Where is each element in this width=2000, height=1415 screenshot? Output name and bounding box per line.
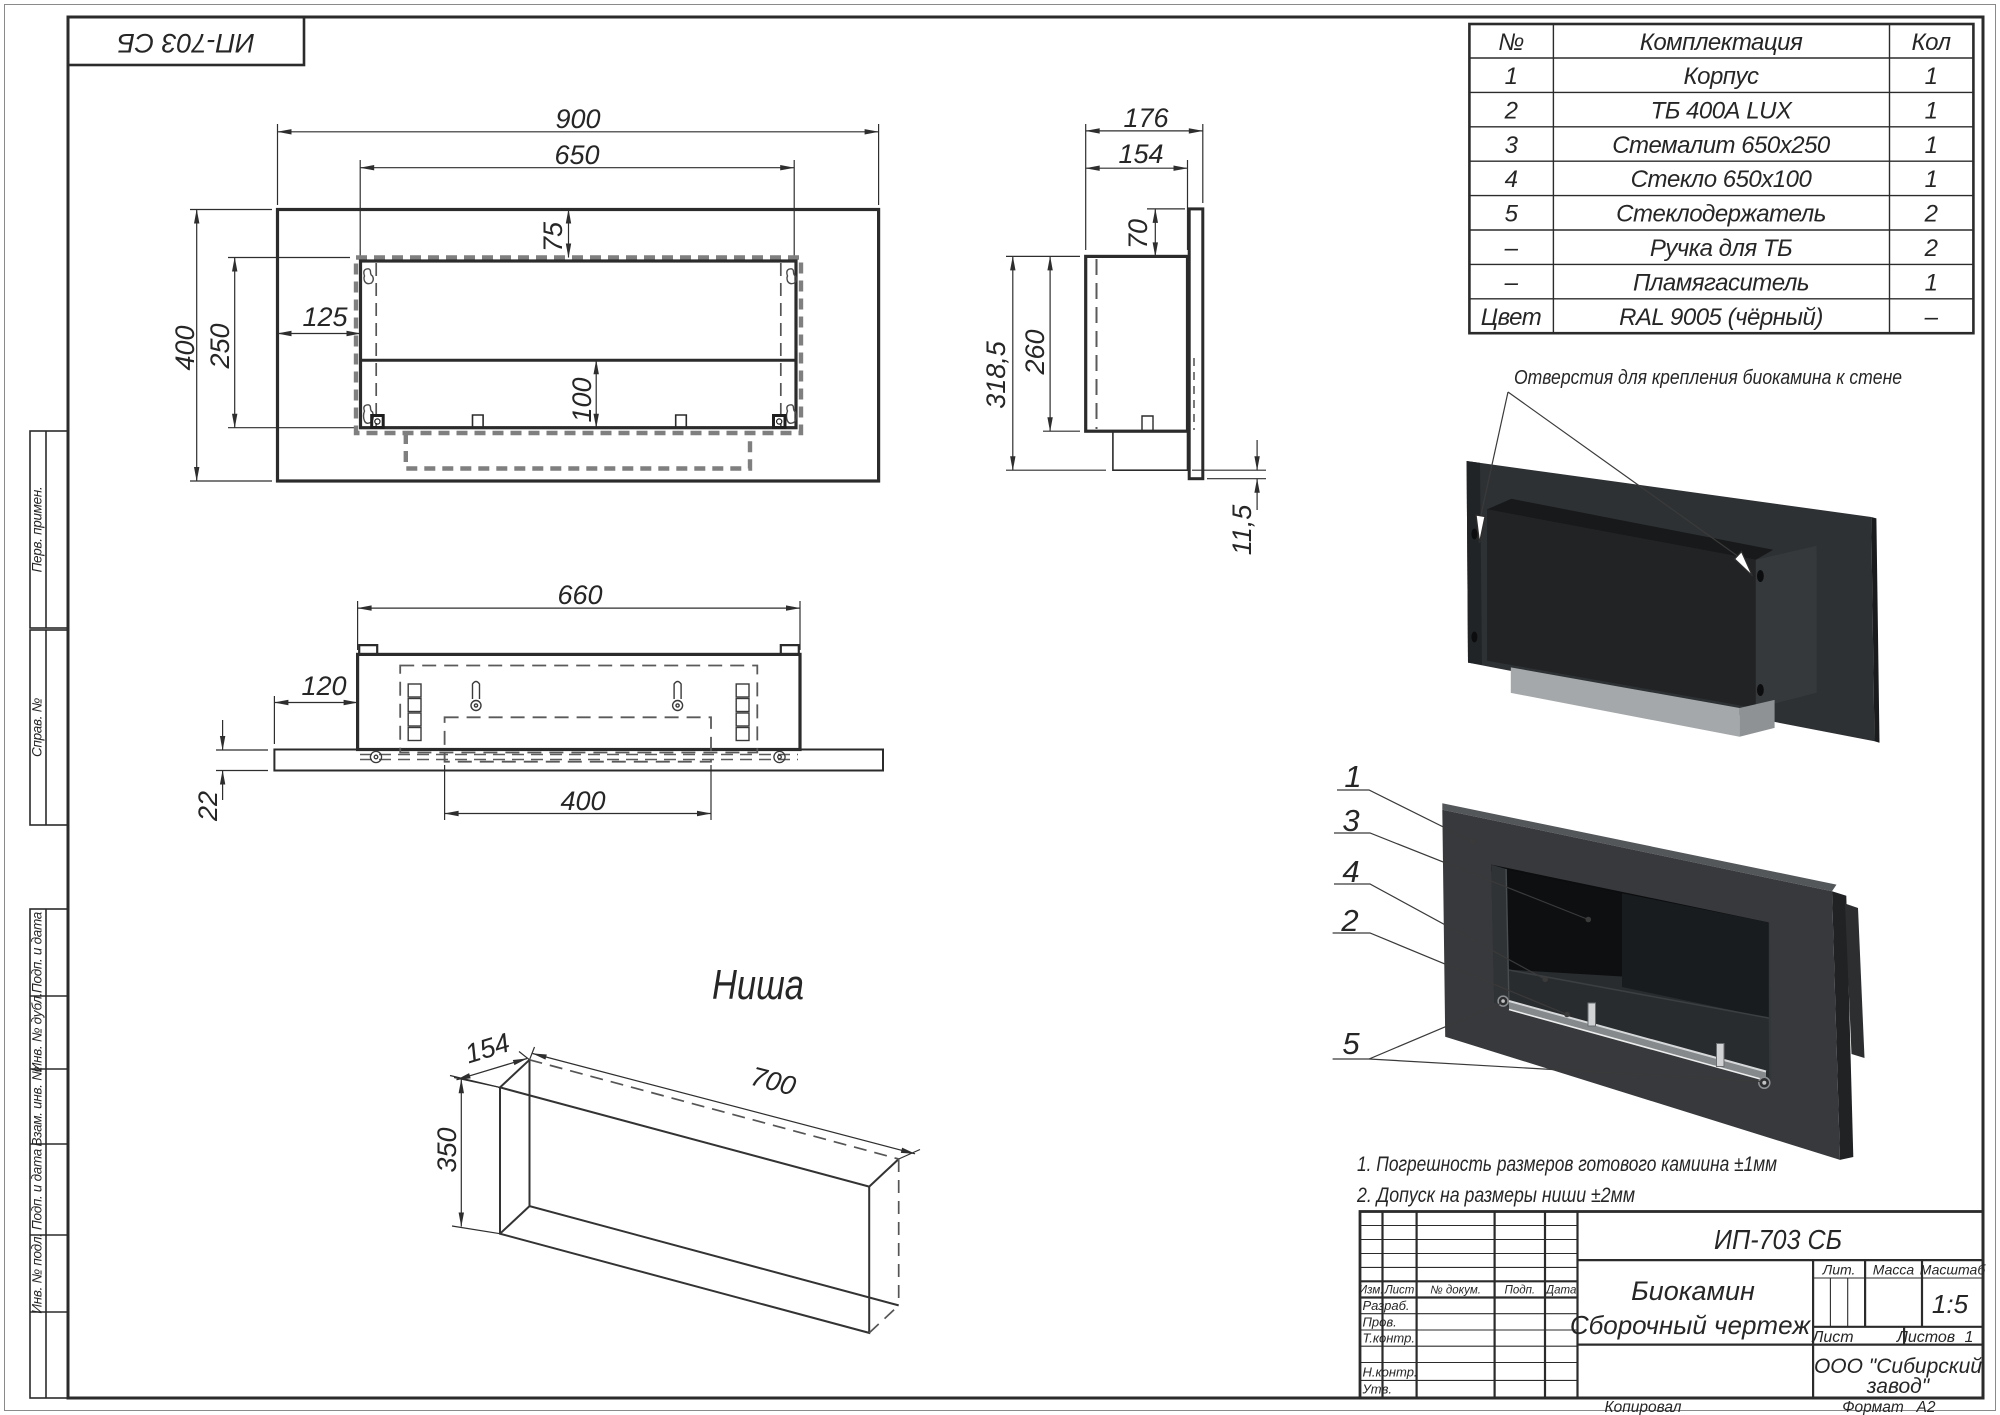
svg-text:Масштаб: Масштаб (1920, 1262, 1987, 1278)
svg-text:Листов: Листов (1896, 1329, 1955, 1346)
svg-text:Изм.: Изм. (1359, 1285, 1384, 1297)
svg-text:2: 2 (1504, 97, 1518, 124)
svg-text:А2: А2 (1916, 1399, 1936, 1415)
svg-text:Т.контр.: Т.контр. (1363, 1331, 1415, 1346)
svg-text:Формат: Формат (1842, 1399, 1904, 1415)
svg-text:2: 2 (1924, 235, 1938, 262)
svg-text:Дата: Дата (1544, 1285, 1576, 1297)
svg-text:–: – (1504, 269, 1519, 296)
svg-text:Инв. № подл.: Инв. № подл. (30, 1233, 45, 1313)
svg-text:4: 4 (1505, 166, 1518, 193)
svg-text:154: 154 (1118, 139, 1163, 169)
svg-text:1: 1 (1505, 63, 1518, 90)
svg-text:№ докум.: № докум. (1430, 1285, 1481, 1297)
svg-text:ТБ 400А LUX: ТБ 400А LUX (1651, 97, 1793, 124)
svg-text:5: 5 (1505, 201, 1519, 228)
svg-text:1: 1 (1925, 97, 1938, 124)
svg-text:260: 260 (1020, 329, 1050, 375)
svg-text:Стемалит 650х250: Стемалит 650х250 (1612, 132, 1831, 159)
svg-text:№: № (1498, 29, 1524, 56)
svg-text:Лит.: Лит. (1822, 1262, 1856, 1278)
svg-text:176: 176 (1123, 103, 1169, 133)
svg-text:Цвет: Цвет (1481, 304, 1542, 331)
svg-text:Корпус: Корпус (1683, 63, 1759, 90)
svg-text:Подп.: Подп. (1504, 1285, 1535, 1297)
svg-text:400: 400 (560, 786, 605, 816)
svg-text:75: 75 (538, 221, 568, 252)
svg-text:120: 120 (301, 671, 346, 701)
svg-text:2: 2 (1924, 201, 1938, 228)
svg-text:1: 1 (1344, 759, 1361, 794)
svg-text:11,5: 11,5 (1227, 504, 1257, 556)
svg-text:Взам. инв. №: Взам. инв. № (30, 1066, 45, 1147)
svg-text:2. Допуск на размеры ниши ±2мм: 2. Допуск на размеры ниши ±2мм (1356, 1184, 1635, 1207)
svg-text:1. Погрешность размеров готово: 1. Погрешность размеров готового камиина… (1357, 1153, 1777, 1176)
svg-text:650: 650 (554, 140, 599, 170)
svg-text:Пров.: Пров. (1363, 1315, 1397, 1330)
svg-text:Подп. и дата: Подп. и дата (30, 1148, 45, 1230)
svg-text:1: 1 (1925, 269, 1938, 296)
svg-text:1: 1 (1925, 166, 1938, 193)
svg-text:350: 350 (432, 1127, 462, 1172)
svg-text:–: – (1504, 235, 1519, 262)
svg-text:318,5: 318,5 (981, 340, 1011, 409)
svg-text:100: 100 (567, 377, 597, 422)
svg-text:ИП-703 СБ: ИП-703 СБ (117, 28, 255, 58)
svg-text:400: 400 (170, 325, 200, 370)
svg-text:Н.контр.: Н.контр. (1363, 1365, 1418, 1380)
svg-text:Подп. и дата: Подп. и дата (30, 911, 45, 993)
svg-text:Комплектация: Комплектация (1640, 29, 1803, 56)
svg-text:Перв. примен.: Перв. примен. (30, 487, 45, 573)
svg-text:1: 1 (1965, 1329, 1974, 1346)
svg-text:250: 250 (205, 323, 235, 369)
svg-text:1: 1 (1925, 132, 1938, 159)
svg-text:Стекло 650х100: Стекло 650х100 (1631, 166, 1813, 193)
svg-text:Копировал: Копировал (1604, 1399, 1681, 1415)
svg-text:660: 660 (557, 580, 602, 610)
svg-text:1: 1 (1925, 63, 1938, 90)
svg-text:70: 70 (1123, 219, 1153, 249)
svg-text:–: – (1924, 304, 1939, 331)
svg-text:1:5: 1:5 (1932, 1289, 1969, 1319)
svg-text:Инв. № дубл.: Инв. № дубл. (30, 993, 45, 1072)
svg-text:Масса: Масса (1873, 1262, 1915, 1278)
svg-text:Стеклодержатель: Стеклодержатель (1616, 201, 1826, 228)
svg-text:Кол: Кол (1912, 29, 1952, 56)
svg-text:Отверстия для крепления биокам: Отверстия для крепления биокамина к стен… (1514, 367, 1902, 389)
svg-text:Биокамин: Биокамин (1631, 1276, 1755, 1306)
svg-text:900: 900 (555, 104, 600, 134)
svg-text:22: 22 (193, 791, 223, 822)
svg-text:завод": завод" (1866, 1375, 1931, 1398)
svg-text:ИП-703 СБ: ИП-703 СБ (1714, 1224, 1842, 1255)
svg-text:125: 125 (302, 302, 348, 332)
svg-text:RAL 9005 (чёрный): RAL 9005 (чёрный) (1619, 304, 1823, 331)
svg-text:Пламягаситель: Пламягаситель (1633, 269, 1809, 296)
svg-text:Ручка для ТБ: Ручка для ТБ (1650, 235, 1792, 262)
svg-text:Лист: Лист (1384, 1285, 1415, 1297)
svg-text:3: 3 (1505, 132, 1519, 159)
svg-text:Сборочный чертеж: Сборочный чертеж (1570, 1310, 1811, 1340)
svg-text:Справ. №: Справ. № (30, 697, 45, 757)
svg-text:Разраб.: Разраб. (1363, 1298, 1410, 1313)
svg-text:Лист: Лист (1811, 1329, 1853, 1346)
svg-text:Утв.: Утв. (1362, 1382, 1393, 1397)
svg-text:5: 5 (1342, 1026, 1360, 1061)
svg-text:Ниша: Ниша (712, 961, 804, 1008)
